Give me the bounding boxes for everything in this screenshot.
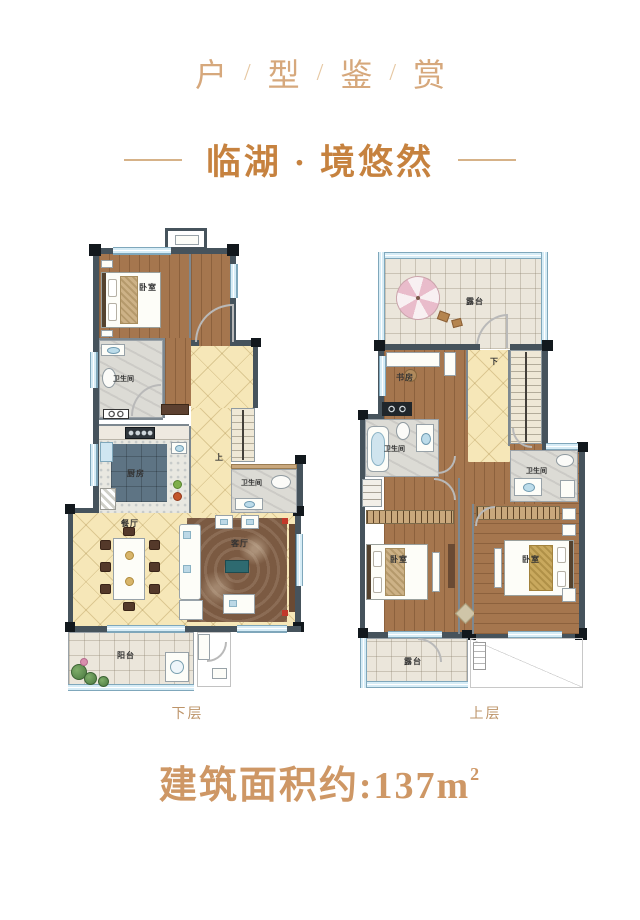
- title-char: 鉴: [340, 50, 372, 96]
- vanity-icon: [235, 498, 263, 510]
- pillow-icon: [557, 547, 566, 563]
- chair-icon: [149, 584, 160, 594]
- toilet-icon: [396, 422, 410, 440]
- lounge-chair-icon: [223, 594, 255, 614]
- title-char: 户: [195, 50, 227, 96]
- chair-icon: [149, 562, 160, 572]
- pillow-icon: [373, 577, 382, 593]
- room-label-bath1: 卫生间: [113, 376, 134, 383]
- dresser-icon: [448, 544, 455, 588]
- subtitle-row: 临湖 · 境悠然: [0, 134, 640, 185]
- sink-icon: [175, 445, 184, 452]
- washer-unit-icon: [103, 409, 129, 419]
- console-table-icon: [161, 404, 189, 415]
- subtitle-right-line: [458, 159, 516, 161]
- bed-icon: [366, 544, 428, 600]
- title-separator: /: [317, 60, 324, 87]
- bed-headboard: [569, 541, 573, 595]
- vanity-icon: [514, 478, 542, 496]
- caption-upper-floor: 上层: [358, 703, 613, 723]
- bed-icon: [101, 272, 161, 328]
- pillow-icon: [108, 279, 117, 297]
- chair-icon: [100, 584, 111, 594]
- pillow-icon: [557, 571, 566, 587]
- ac-platform: [165, 228, 207, 250]
- terrace-window: [378, 252, 548, 259]
- shower-icon: [560, 480, 575, 498]
- window: [379, 356, 386, 396]
- fruit-bowl-icon: [173, 492, 182, 501]
- chair-icon: [123, 602, 135, 611]
- sofa-icon: [179, 524, 201, 600]
- vanity-icon: [101, 344, 125, 356]
- room-label-bedroom-right: 卧室: [522, 556, 540, 564]
- wall-block: [358, 628, 368, 638]
- room-label-bath2: 卫生间: [241, 480, 262, 487]
- wall-block: [65, 504, 75, 514]
- pillow-icon: [108, 303, 117, 321]
- room-label-bath-right: 卫生间: [526, 468, 547, 475]
- window: [230, 264, 238, 298]
- lower-hall-floor: [191, 346, 253, 408]
- open-roof-area: [470, 638, 583, 688]
- window: [90, 444, 98, 486]
- stairs-direction-label: 下: [490, 358, 499, 366]
- interior-wall: [189, 254, 191, 338]
- room-label-study: 书房: [396, 374, 414, 382]
- toilet-icon: [556, 454, 574, 467]
- chair-icon: [100, 540, 111, 550]
- subtitle-left-line: [124, 159, 182, 161]
- area-value: 建筑面积约:137m: [159, 765, 470, 807]
- title-separator: /: [389, 60, 396, 87]
- cushion-icon: [183, 565, 191, 573]
- plant-icon: [98, 676, 109, 687]
- armchair-icon: [241, 515, 259, 529]
- shelf-unit-icon: [362, 479, 382, 507]
- fruit-bowl-icon: [173, 480, 182, 489]
- bench-icon: [432, 552, 440, 592]
- dining-table-icon: [113, 538, 145, 600]
- lower-corridor-floor: [165, 338, 191, 406]
- plate-icon: [125, 577, 134, 586]
- bookcase-icon: [444, 352, 456, 376]
- lower-hall-floor-south: [191, 408, 231, 513]
- cushion-icon: [220, 519, 228, 525]
- sofa-corner-icon: [179, 600, 203, 620]
- room-label-bedroom: 卧室: [139, 284, 157, 292]
- caption-lower-floor: 下层: [65, 703, 310, 723]
- wall-block: [89, 244, 101, 256]
- room-label-balcony: 阳台: [117, 652, 135, 660]
- wall: [68, 508, 73, 630]
- nightstand-icon: [101, 260, 113, 268]
- wall: [579, 446, 585, 638]
- appliance-unit-icon: [382, 402, 412, 416]
- project-name: 临湖 · 境悠然: [206, 134, 434, 185]
- chair-icon: [123, 527, 135, 536]
- area-superscript: 2: [470, 764, 481, 784]
- room-label-kitchen: 厨房: [127, 470, 145, 478]
- floor-plan-upper: 露台 书房 下: [358, 252, 613, 692]
- wall-block: [577, 442, 588, 452]
- wall-block: [542, 340, 553, 351]
- window: [360, 681, 468, 688]
- title-char: 型: [268, 50, 300, 96]
- wall-block: [227, 244, 239, 256]
- floorplan-poster: 户 / 型 / 鉴 / 赏 临湖 · 境悠然: [0, 0, 640, 920]
- window: [113, 247, 171, 255]
- cabinet-icon: [562, 524, 576, 536]
- ac-unit-icon: [473, 642, 486, 670]
- flower-icon: [80, 658, 88, 666]
- stove-icon: [125, 427, 155, 439]
- speaker-icon: [282, 610, 288, 616]
- area-text: 建筑面积约:137m2: [0, 754, 640, 809]
- ac-unit-icon: [175, 235, 199, 245]
- wall: [378, 344, 480, 350]
- kitchen-sink-icon: [171, 442, 187, 454]
- entry-door-leaf: [232, 304, 234, 342]
- window: [237, 625, 287, 633]
- page-title: 户 / 型 / 鉴 / 赏: [0, 50, 640, 96]
- bed-headboard: [367, 545, 371, 599]
- speaker-icon: [282, 518, 288, 524]
- wardrobe-icon: [366, 510, 454, 524]
- fridge-icon: [100, 442, 113, 462]
- nightstand-icon: [101, 330, 113, 337]
- wall: [253, 346, 258, 408]
- bed-headboard: [102, 273, 106, 327]
- cabinet-icon: [562, 588, 576, 602]
- washer-icon: [165, 652, 189, 682]
- umbrella-pole: [416, 296, 420, 300]
- window: [107, 625, 185, 633]
- chair-icon: [100, 562, 111, 572]
- plant-icon: [84, 672, 97, 685]
- vanity-icon: [416, 424, 434, 452]
- pillow-icon: [373, 551, 382, 567]
- terrace-door-leaf: [506, 314, 508, 348]
- upper-hall-floor: [468, 350, 510, 462]
- title-char: 赏: [413, 50, 445, 96]
- sink-icon: [107, 347, 120, 354]
- title-separator: /: [244, 60, 251, 87]
- room-label-living: 客厅: [231, 540, 249, 548]
- floor-plan-lower: 卧室 卫生间 厨房 上 卫生间 餐厅: [65, 228, 310, 695]
- terrace-window: [541, 252, 548, 349]
- sink-icon: [523, 483, 535, 492]
- washer-drum: [170, 660, 184, 674]
- interior-wall: [99, 338, 165, 340]
- window: [360, 638, 367, 688]
- plate-icon: [125, 551, 134, 560]
- wall-block: [295, 455, 306, 464]
- stair-rail: [242, 410, 244, 460]
- armchair-icon: [215, 515, 233, 529]
- window: [68, 684, 194, 691]
- wall-block: [374, 340, 385, 351]
- cushion-icon: [246, 519, 254, 525]
- terrace-window: [378, 252, 385, 349]
- sink-icon: [244, 501, 255, 508]
- doormat-icon: [212, 668, 227, 679]
- corner-cabinet-icon: [100, 488, 116, 510]
- interior-wall: [508, 350, 510, 446]
- stairs-direction-label: 上: [215, 454, 224, 462]
- desk-icon: [386, 352, 440, 367]
- wall-block: [251, 338, 261, 347]
- blanket-icon: [120, 276, 138, 324]
- window: [90, 352, 98, 388]
- bench-icon: [494, 548, 502, 588]
- tv-cabinet-icon: [289, 524, 295, 612]
- window: [296, 534, 303, 586]
- toilet-icon: [271, 475, 291, 489]
- wall: [542, 344, 548, 450]
- interior-wall: [189, 426, 191, 513]
- room-label-terrace-top: 露台: [466, 298, 484, 306]
- coffee-table-icon: [225, 560, 249, 573]
- cushion-icon: [183, 531, 191, 539]
- window: [546, 443, 578, 450]
- cushion-icon: [229, 600, 237, 607]
- wall-block: [65, 622, 75, 632]
- room-label-bedroom-left: 卧室: [390, 556, 408, 564]
- blanket-icon: [529, 545, 553, 591]
- cabinet-icon: [562, 508, 576, 520]
- sink-icon: [421, 433, 431, 445]
- chair-icon: [149, 540, 160, 550]
- room-label-bath-left: 卫生间: [384, 446, 405, 453]
- bathtub-basin: [371, 432, 385, 466]
